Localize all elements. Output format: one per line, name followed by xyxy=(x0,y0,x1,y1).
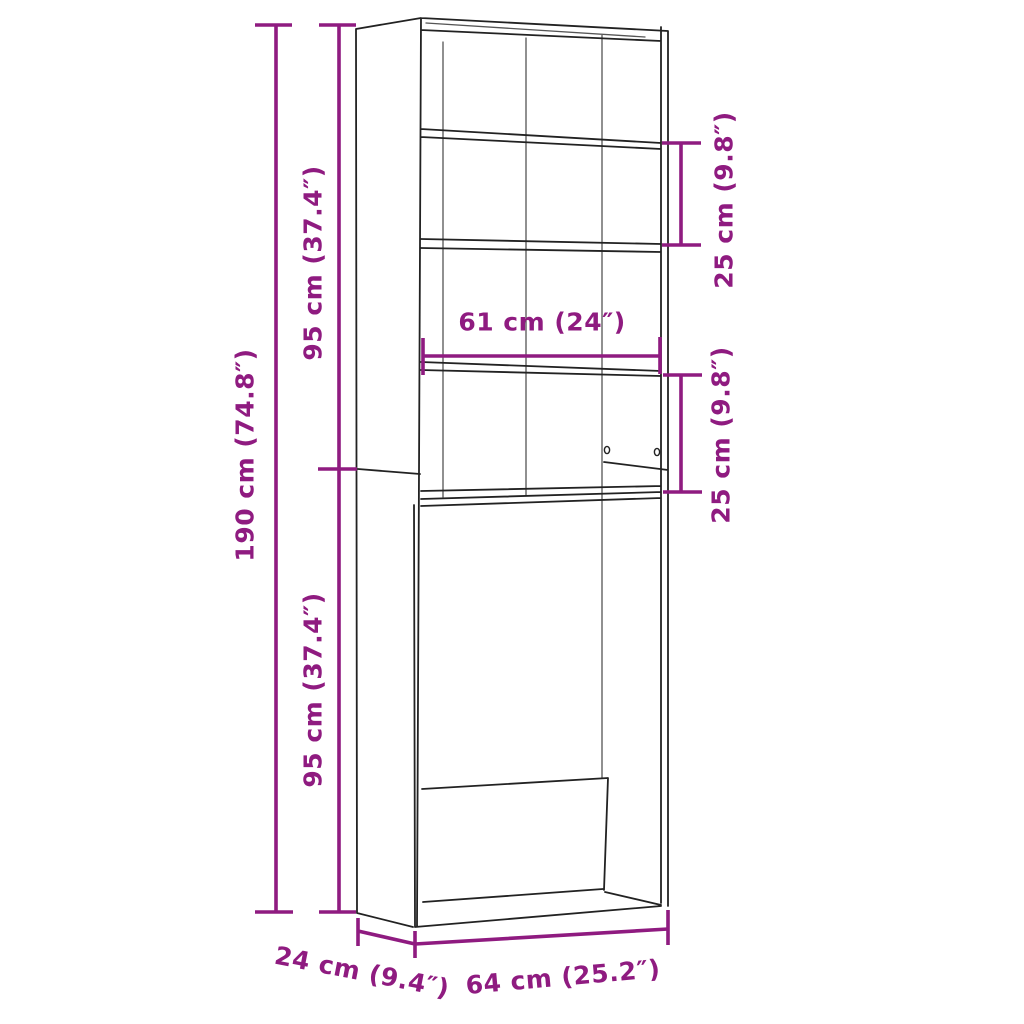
dim-line-total-height xyxy=(255,25,293,912)
cam-hole xyxy=(654,448,659,455)
diagram-canvas: 95 cm (37.4″) 190 cm (74.8″) 95 cm (37.4… xyxy=(0,0,1024,1024)
lower-height-label: 95 cm (37.4″) xyxy=(299,592,328,787)
dim-line-depth xyxy=(358,918,415,958)
total-width-label: 64 cm (25.2″) xyxy=(464,954,661,1000)
inner-width-label: 61 cm (24″) xyxy=(458,308,625,337)
lower-shelf-gap-label: 25 cm (9.8″) xyxy=(707,346,736,523)
cabinet-outline-lines xyxy=(356,18,668,927)
total-height-label: 190 cm (74.8″) xyxy=(231,348,260,561)
cabinet-dimension-diagram: 95 cm (37.4″) 190 cm (74.8″) 95 cm (37.4… xyxy=(0,0,1024,1024)
cabinet-drawing xyxy=(356,18,668,927)
cam-hole xyxy=(604,446,609,453)
dimension-lines xyxy=(255,25,702,958)
depth-label: 24 cm (9.4″) xyxy=(272,941,452,1003)
cam-holes xyxy=(604,446,659,455)
upper-height-label: 95 cm (37.4″) xyxy=(299,165,328,360)
upper-shelf-gap-label: 25 cm (9.8″) xyxy=(710,111,739,288)
dim-line-total-width xyxy=(415,910,668,945)
